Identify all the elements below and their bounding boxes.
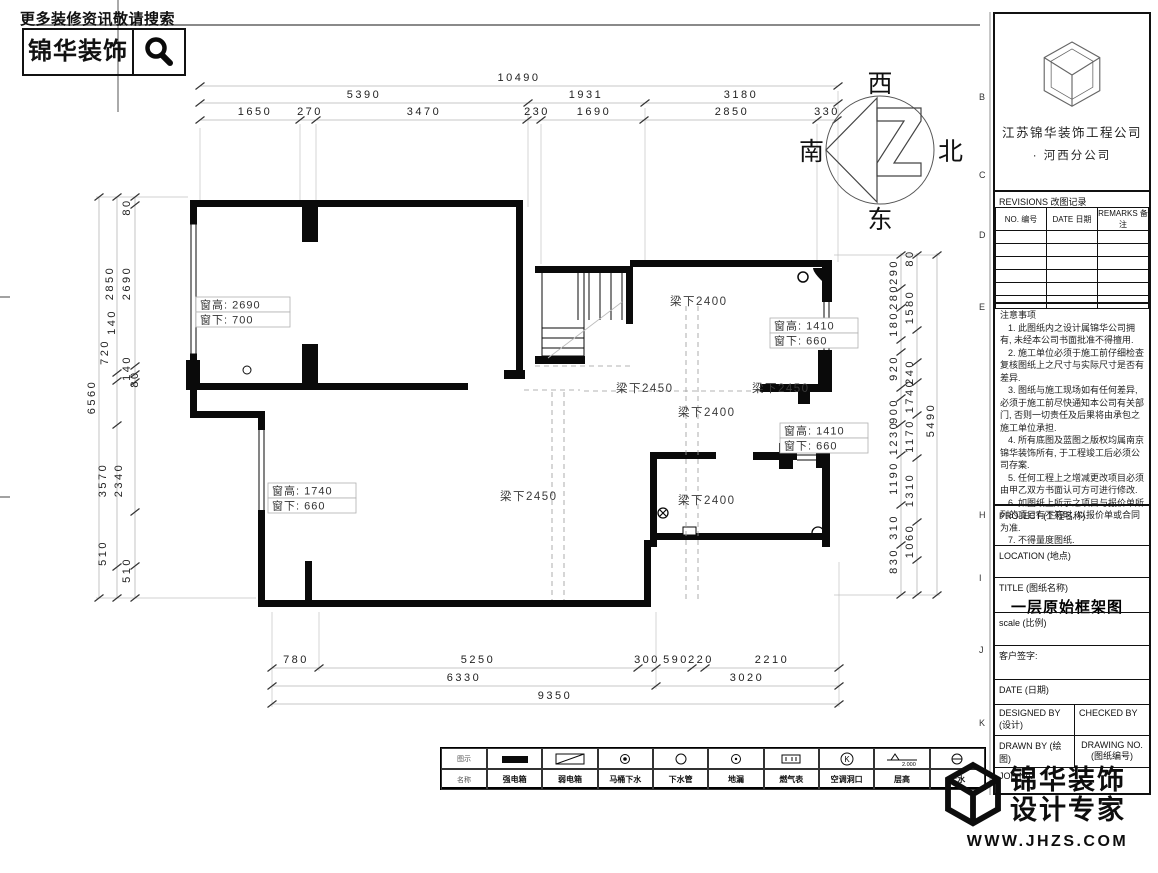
note-item: 4. 所有底图及蓝图之版权均属南京锦华装饰所有, 于工程竣工后必须公司存案. — [1000, 434, 1144, 472]
designed-checked-row: DESIGNED BY (设计) CHECKED BY — [995, 704, 1149, 735]
window-height-label: 窗高: 2690 — [200, 298, 261, 312]
dim-text: 510 — [97, 540, 109, 566]
legend-symbol-toilet-drain-icon — [598, 748, 653, 769]
dim-text: 2850 — [104, 266, 116, 300]
window-sill-label: 窗下: 660 — [774, 334, 827, 348]
sheet-border-lines — [0, 0, 990, 795]
note-item: 1. 此图纸内之设计属锦华公司拥有, 未经本公司书面批准不得擅用. — [1000, 322, 1144, 347]
compass-south-label: 南 — [799, 138, 824, 166]
dim-text: 2690 — [121, 266, 133, 300]
note-item: 3. 图纸与施工现场如有任何差异, 必须于施工前尽快通知本公司有关部门, 否则一… — [1000, 384, 1144, 434]
checked-by-label: CHECKED BY — [1075, 705, 1149, 735]
dim-text: 1190 — [888, 461, 900, 495]
beam-label: 梁下2450 — [752, 381, 810, 395]
dim-text: 290 — [888, 259, 900, 285]
legend-symbol-floor-drain-icon — [708, 748, 763, 769]
designed-by-label: DESIGNED BY (设计) — [995, 705, 1075, 735]
legend-item-name: 马桶下水 — [598, 769, 653, 790]
dim-text: 590 — [663, 654, 689, 666]
compass: 西 北 南 东 — [799, 70, 963, 234]
revisions-empty-row — [996, 244, 1149, 257]
legend-name-col-label: 名称 — [441, 769, 487, 790]
legend-symbol-drain-pipe-icon — [653, 748, 708, 769]
revisions-empty-row — [996, 283, 1149, 296]
floor-drain-symbol — [658, 508, 668, 518]
client-signature-row: 客户签字: — [995, 645, 1149, 679]
compass-east-label: 东 — [867, 206, 892, 234]
dim-text: 780 — [283, 654, 309, 666]
dim-text: 2340 — [113, 463, 125, 497]
legend-symbol-floor-height-icon: 2.000 — [874, 748, 929, 769]
svg-text:K: K — [844, 755, 850, 764]
dim-text: 1690 — [577, 106, 611, 118]
dim-text: 1060 — [904, 524, 916, 558]
legend-symbol-gas-meter-icon — [764, 748, 819, 769]
dim-text: 1650 — [238, 106, 272, 118]
dim-text: 1230 — [888, 421, 900, 455]
dim-text: 510 — [121, 557, 133, 583]
note-item: 2. 施工单位必须于施工前仔细检查复核图纸上之尺寸与实际尺寸是否有差异. — [1000, 347, 1144, 385]
dim-text: 220 — [688, 654, 714, 666]
company-branch: · 河西分公司 — [995, 147, 1149, 163]
dim-text: 9350 — [538, 690, 572, 702]
title-block: 江苏锦华装饰工程公司 · 河西分公司 REVISIONS 改图记录 NO. 编号… — [993, 12, 1151, 795]
window-sill-label: 窗下: 700 — [200, 313, 253, 327]
scale-row: scale (比例) — [995, 612, 1149, 645]
dim-text: 280 — [888, 284, 900, 310]
dim-text: 80 — [121, 198, 133, 215]
dim-text: 3570 — [97, 463, 109, 497]
brand-logo-text: 锦华装饰 — [24, 30, 132, 74]
legend-item-name: 弱电箱 — [542, 769, 597, 790]
dimension-ticks — [95, 83, 942, 708]
title-row: TITLE (图纸名称) 一层原始框架图 — [995, 577, 1149, 612]
dims-left: 6560 3570 2850 2690 80 140 720 140 80 23… — [86, 198, 141, 583]
staircase — [535, 273, 630, 366]
watermark-logo: 锦华装饰 设计专家 WWW.JHZS.COM — [940, 760, 1155, 851]
legend-item-name: 空调洞口 — [819, 769, 874, 790]
legend-item-name: 地漏 — [708, 769, 763, 790]
grid-letter: C — [979, 170, 986, 180]
title-label: TITLE (图纸名称) — [999, 581, 1145, 594]
legend-item-name: 燃气表 — [764, 769, 819, 790]
window-label-1: 窗高: 1410 窗下: 660 — [770, 318, 858, 348]
dims-right: 5490 80 290 280 1580 180 920 240 1740 90… — [888, 249, 937, 574]
grid-letter: E — [979, 302, 985, 312]
compass-north-label: 北 — [938, 138, 963, 166]
legend-table: 图示 K 2.000 名称 强电箱 弱电箱 马桶下水 下水管 地漏 燃气表 空调… — [440, 747, 986, 790]
legend-item-name: 层高 — [874, 769, 929, 790]
beam-label: 梁下2400 — [678, 493, 736, 507]
legend-symbol-col-label: 图示 — [441, 748, 487, 769]
brand-search-box: 锦华装饰 — [22, 28, 186, 76]
compass-west-label: 西 — [867, 70, 892, 98]
location-row: LOCATION (地点) — [995, 545, 1149, 577]
search-button — [132, 30, 184, 74]
watermark-cube-icon — [940, 760, 1006, 830]
dim-text: 900 — [888, 398, 900, 424]
revisions-col-date: DATE 日期 — [1047, 208, 1098, 231]
dim-text: 830 — [888, 548, 900, 574]
window-label-3: 窗高: 1740 窗下: 660 — [268, 483, 356, 513]
company-cell: 江苏锦华装饰工程公司 · 河西分公司 — [995, 14, 1149, 190]
revisions-title: REVISIONS 改图记录 — [995, 190, 1149, 207]
grid-letter: J — [979, 645, 984, 655]
dim-text: 5490 — [925, 403, 937, 437]
dim-text: 720 — [99, 339, 111, 365]
dims-top: 10490 5390 1931 3180 1650 270 3470 230 1… — [238, 72, 840, 118]
window-height-label: 窗高: 1410 — [784, 424, 845, 438]
dim-text: 270 — [297, 106, 323, 118]
walls — [186, 200, 832, 607]
window-height-label: 窗高: 1410 — [774, 319, 835, 333]
grid-letter: D — [979, 230, 986, 240]
fixture-circle — [798, 272, 808, 282]
dims-bottom: 780 5250 300 590 220 2210 6330 3020 9350 — [283, 654, 789, 702]
dim-text: 230 — [524, 106, 550, 118]
revisions-empty-row — [996, 231, 1149, 244]
company-cube-logo-icon — [1039, 36, 1105, 114]
grid-letter: B — [979, 92, 985, 102]
dim-text: 180 — [888, 311, 900, 337]
legend-symbol-weak-electric-icon — [542, 748, 597, 769]
dim-text: 2210 — [755, 654, 789, 666]
revisions-table: NO. 编号 DATE 日期 REMARKS 备注 — [995, 207, 1149, 309]
legend-item-name: 下水管 — [653, 769, 708, 790]
dim-text: 330 — [814, 106, 840, 118]
legend-item-name: 强电箱 — [487, 769, 542, 790]
beam-label: 梁下2400 — [670, 294, 728, 308]
search-icon — [141, 34, 177, 70]
dim-text: 80 — [129, 370, 141, 387]
legend-level-value: 2.000 — [902, 762, 916, 767]
revisions-col-remarks: REMARKS 备注 — [1098, 208, 1149, 231]
revisions-empty-row — [996, 270, 1149, 283]
dim-text: 5250 — [461, 654, 495, 666]
watermark-brand-line1: 锦华装饰 — [1010, 765, 1126, 795]
company-name: 江苏锦华装饰工程公司 — [995, 122, 1149, 141]
grid-letter: K — [979, 718, 985, 728]
dim-text: 2850 — [715, 106, 749, 118]
dim-text: 6560 — [86, 380, 98, 414]
dimension-lines — [99, 86, 937, 704]
watermark-url: WWW.JHZS.COM — [940, 833, 1155, 851]
notes-section: 注意事项 1. 此图纸内之设计属锦华公司拥有, 未经本公司书面批准不得擅用. 2… — [995, 302, 1149, 504]
dim-text: 1580 — [904, 290, 916, 324]
grid-letter: I — [979, 573, 982, 583]
dim-text: 300 — [634, 654, 660, 666]
grid-letter: H — [979, 510, 986, 520]
dim-text: 80 — [904, 249, 916, 266]
watermark-brand-line2: 设计专家 — [1010, 795, 1126, 825]
window-sill-label: 窗下: 660 — [272, 499, 325, 513]
beam-label: 梁下2450 — [616, 381, 674, 395]
notes-title: 注意事项 — [1000, 309, 1144, 322]
legend-symbol-strong-electric-icon — [487, 748, 542, 769]
revisions-col-no: NO. 编号 — [996, 208, 1047, 231]
dim-text: 310 — [888, 514, 900, 540]
dim-text: 3020 — [730, 672, 764, 684]
dim-text: 920 — [888, 355, 900, 381]
dim-text: 3180 — [724, 89, 758, 101]
dim-text: 1170 — [904, 419, 916, 453]
dim-text: 1740 — [904, 379, 916, 413]
dim-text: 1931 — [569, 89, 603, 101]
drawing-sheet: 10490 5390 1931 3180 1650 270 3470 230 1… — [0, 0, 1158, 873]
window-label-0: 窗高: 2690 窗下: 700 — [196, 297, 290, 327]
promo-tagline: 更多装修资讯敬请搜索 — [20, 8, 175, 29]
beam-label: 梁下2450 — [500, 489, 558, 503]
dim-text: 5390 — [347, 89, 381, 101]
note-item: 5. 任何工程上之增减更改项目必须由甲乙双方书面认可方可进行修改. — [1000, 472, 1144, 497]
window-label-2: 窗高: 1410 窗下: 660 — [780, 423, 868, 453]
revisions-empty-row — [996, 257, 1149, 270]
dim-text: 1310 — [904, 473, 916, 507]
beam-label: 梁下2400 — [678, 405, 736, 419]
dim-text: 140 — [106, 309, 118, 335]
extension-lines — [96, 91, 940, 707]
window-height-label: 窗高: 1740 — [272, 484, 333, 498]
dim-text: 10490 — [497, 72, 540, 84]
dim-text: 6330 — [447, 672, 481, 684]
legend-symbol-ac-opening-icon: K — [819, 748, 874, 769]
floor-plan-canvas: 10490 5390 1931 3180 1650 270 3470 230 1… — [0, 0, 1158, 873]
fixture-circle — [243, 366, 251, 374]
project-row: PROJECT (工程名称) — [995, 504, 1149, 545]
dim-text: 3470 — [407, 106, 441, 118]
date-row: DATE (日期) — [995, 679, 1149, 704]
window-sill-label: 窗下: 660 — [784, 439, 837, 453]
